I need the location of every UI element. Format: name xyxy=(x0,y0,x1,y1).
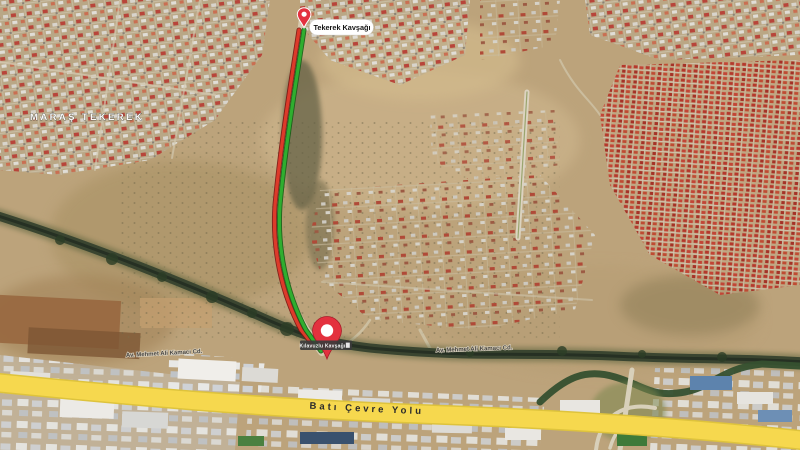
start-pin-label: Tekerek Kavşağı xyxy=(313,23,370,32)
satellite-map: Batı Çevre Yolu Av. Mehmet Ali Kamacı Cd… xyxy=(0,0,800,450)
destination-pin-label: Kılavuzlu Kavşağı xyxy=(300,341,352,351)
svg-text:Kılavuzlu Kavşağı: Kılavuzlu Kavşağı xyxy=(300,343,346,349)
locality-label: MARAŞ TEKEREK xyxy=(30,112,144,123)
start-pin-dot xyxy=(302,12,307,17)
satellite-map-canvas[interactable]: Batı Çevre Yolu Av. Mehmet Ali Kamacı Cd… xyxy=(0,0,800,450)
destination-pin-dot xyxy=(321,324,333,336)
